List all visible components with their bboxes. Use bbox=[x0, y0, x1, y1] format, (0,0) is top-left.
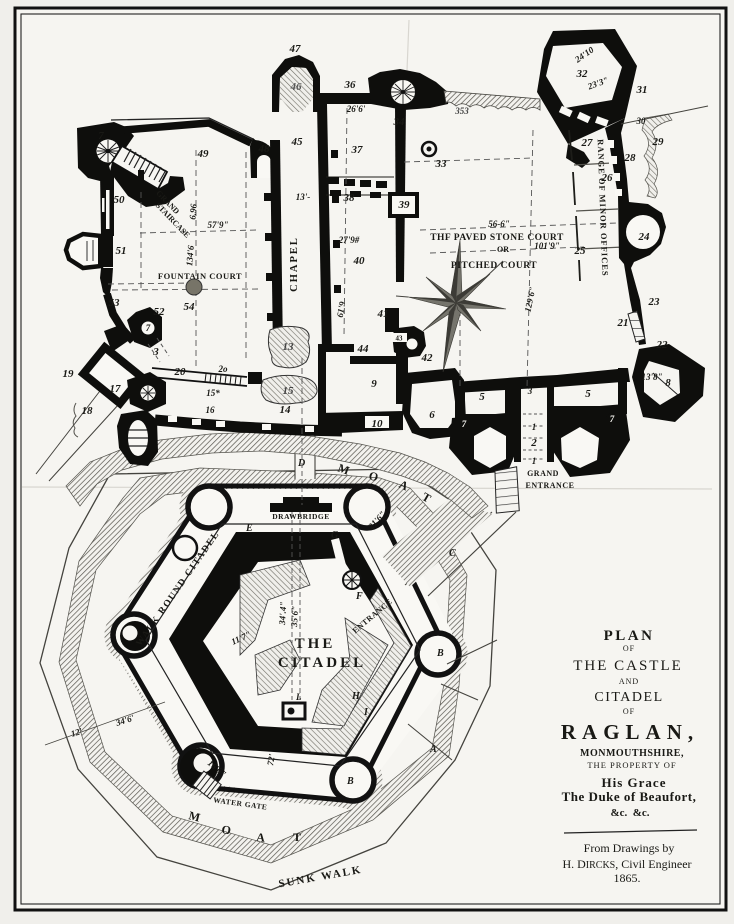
svg-text:6: 6 bbox=[429, 409, 435, 421]
svg-text:CHAPEL: CHAPEL bbox=[289, 236, 300, 292]
svg-text:H. DIRCKS, Civil Engineer: H. DIRCKS, Civil Engineer bbox=[562, 857, 691, 871]
svg-text:28: 28 bbox=[624, 152, 637, 164]
svg-text:2: 2 bbox=[530, 437, 537, 449]
svg-text:14: 14 bbox=[280, 404, 292, 416]
svg-text:40: 40 bbox=[353, 255, 366, 267]
svg-text:57'9": 57'9" bbox=[208, 220, 229, 230]
svg-text:3: 3 bbox=[527, 386, 533, 396]
svg-text:F: F bbox=[355, 591, 363, 602]
svg-text:The Duke of Beaufort,: The Duke of Beaufort, bbox=[562, 789, 697, 804]
svg-text:52: 52 bbox=[154, 306, 166, 318]
svg-text:34'.4": 34'.4" bbox=[277, 601, 288, 626]
svg-text:13: 13 bbox=[283, 341, 295, 353]
svg-text:53: 53 bbox=[109, 297, 121, 309]
svg-text:RAGLAN,: RAGLAN, bbox=[561, 720, 699, 744]
svg-text:23: 23 bbox=[648, 296, 661, 308]
svg-text:36: 36 bbox=[344, 79, 357, 91]
svg-text:THE PROPERTY OF: THE PROPERTY OF bbox=[587, 760, 676, 770]
svg-text:A: A bbox=[256, 830, 267, 845]
svg-text:32: 32 bbox=[576, 68, 589, 80]
svg-text:51: 51 bbox=[116, 245, 127, 257]
svg-text:25: 25 bbox=[574, 245, 587, 257]
svg-text:CITADEL: CITADEL bbox=[594, 690, 663, 705]
svg-text:15: 15 bbox=[283, 385, 295, 397]
svg-text:OR: OR bbox=[497, 245, 509, 254]
svg-text:13'8": 13'8" bbox=[642, 372, 663, 382]
svg-text:45: 45 bbox=[291, 136, 304, 148]
svg-text:E: E bbox=[245, 523, 253, 534]
svg-text:42: 42 bbox=[421, 352, 434, 364]
svg-text:4: 4 bbox=[577, 441, 584, 453]
svg-text:PITCHED COURT: PITCHED COURT bbox=[451, 261, 537, 271]
svg-text:1: 1 bbox=[532, 456, 537, 466]
svg-text:56-6": 56-6" bbox=[488, 219, 510, 229]
svg-text:101'9": 101'9" bbox=[534, 241, 560, 251]
svg-text:8: 8 bbox=[665, 377, 671, 389]
svg-text:A: A bbox=[429, 744, 437, 755]
svg-text:1: 1 bbox=[532, 422, 537, 432]
svg-text:OF: OF bbox=[623, 644, 635, 653]
svg-text:18: 18 bbox=[82, 405, 94, 417]
svg-text:10: 10 bbox=[372, 418, 384, 430]
svg-text:27'9#: 27'9# bbox=[338, 235, 360, 245]
svg-text:24: 24 bbox=[638, 231, 651, 243]
svg-text:T: T bbox=[293, 830, 302, 844]
svg-text:38: 38 bbox=[343, 192, 356, 204]
svg-text:17: 17 bbox=[110, 383, 122, 395]
svg-text:AND: AND bbox=[619, 677, 639, 686]
svg-text:7: 7 bbox=[98, 130, 104, 142]
svg-text:134'6: 134'6 bbox=[184, 245, 196, 267]
svg-text:6.96: 6.96 bbox=[187, 203, 198, 220]
svg-text:5: 5 bbox=[585, 388, 591, 400]
svg-text:43: 43 bbox=[396, 335, 404, 343]
svg-text:7: 7 bbox=[610, 414, 615, 424]
svg-text:PLAN: PLAN bbox=[604, 628, 655, 644]
svg-text:FOUNTAIN COURT: FOUNTAIN COURT bbox=[158, 271, 242, 281]
svg-text:G: G bbox=[331, 530, 339, 541]
svg-text:30: 30 bbox=[636, 116, 647, 126]
svg-text:THE CASTLE: THE CASTLE bbox=[573, 658, 683, 674]
svg-text:&c. &c.: &c. &c. bbox=[610, 807, 649, 819]
svg-text:39: 39 bbox=[398, 199, 411, 211]
svg-text:48: 48 bbox=[258, 143, 271, 155]
svg-text:GRAND: GRAND bbox=[527, 469, 559, 478]
svg-text:50: 50 bbox=[114, 194, 126, 206]
svg-text:H: H bbox=[351, 691, 361, 702]
svg-text:16: 16 bbox=[206, 405, 216, 415]
svg-text:DRAWBRIDGE: DRAWBRIDGE bbox=[272, 512, 330, 521]
svg-text:OF: OF bbox=[623, 707, 635, 716]
svg-text:31: 31 bbox=[636, 84, 648, 96]
svg-text:ENTRANCE: ENTRANCE bbox=[526, 481, 575, 490]
svg-text:L: L bbox=[295, 692, 302, 702]
svg-text:MONMOUTHSHIRE,: MONMOUTHSHIRE, bbox=[580, 748, 684, 759]
svg-text:41: 41 bbox=[377, 308, 389, 320]
svg-text:21: 21 bbox=[617, 317, 629, 329]
svg-text:B: B bbox=[346, 776, 354, 787]
svg-text:D: D bbox=[297, 458, 305, 469]
svg-text:7: 7 bbox=[146, 323, 151, 333]
svg-text:4: 4 bbox=[487, 441, 494, 453]
svg-text:26: 26 bbox=[601, 172, 614, 184]
svg-text:3: 3 bbox=[152, 346, 159, 358]
svg-text:46: 46 bbox=[290, 81, 303, 93]
svg-text:54: 54 bbox=[184, 301, 196, 313]
svg-text:20: 20 bbox=[174, 366, 187, 378]
svg-text:2o: 2o bbox=[218, 364, 229, 374]
svg-text:37: 37 bbox=[351, 144, 364, 156]
svg-text:From Drawings by: From Drawings by bbox=[584, 841, 675, 855]
svg-text:His Grace: His Grace bbox=[602, 775, 667, 790]
svg-text:THE: THE bbox=[295, 636, 336, 652]
svg-text:33: 33 bbox=[435, 158, 448, 170]
svg-text:72': 72' bbox=[265, 753, 277, 767]
svg-text:19: 19 bbox=[63, 368, 75, 380]
svg-text:27: 27 bbox=[581, 137, 594, 149]
svg-text:29: 29 bbox=[652, 136, 665, 148]
svg-text:49: 49 bbox=[197, 148, 210, 160]
svg-text:44: 44 bbox=[357, 343, 370, 355]
svg-text:B: B bbox=[436, 648, 444, 659]
svg-text:9: 9 bbox=[371, 378, 377, 390]
svg-text:7: 7 bbox=[462, 419, 467, 429]
svg-text:C: C bbox=[449, 548, 456, 559]
svg-text:5: 5 bbox=[479, 391, 485, 403]
svg-text:22: 22 bbox=[656, 339, 669, 351]
svg-text:47: 47 bbox=[289, 43, 302, 55]
svg-text:CITADEL: CITADEL bbox=[278, 655, 366, 671]
svg-text:35'6": 35'6" bbox=[289, 606, 300, 628]
svg-text:26'6': 26'6' bbox=[346, 104, 366, 114]
svg-text:34: 34 bbox=[393, 116, 406, 128]
svg-text:13'-: 13'- bbox=[296, 192, 311, 202]
svg-text:15*: 15* bbox=[206, 388, 220, 398]
svg-text:1865.: 1865. bbox=[614, 871, 641, 885]
svg-text:353: 353 bbox=[454, 106, 469, 116]
